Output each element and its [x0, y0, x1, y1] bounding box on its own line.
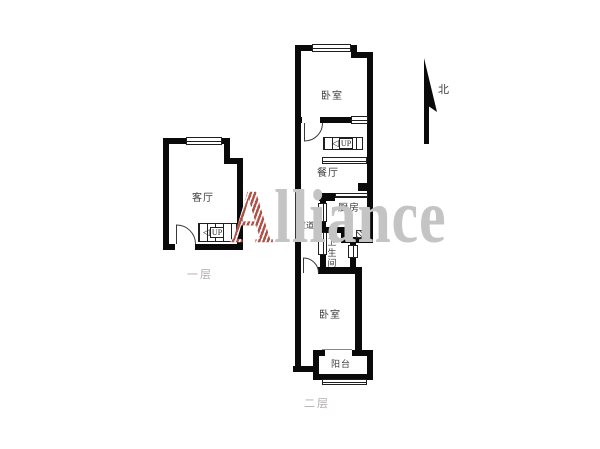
north-arrow-icon [424, 58, 437, 144]
wall-segment [295, 45, 301, 372]
stairs-direction-icon: ◁ [203, 228, 210, 237]
stairs-up-label: ◁UP [332, 138, 353, 149]
watermark: Alliance [230, 179, 446, 255]
wall-segment [355, 267, 362, 353]
wall-segment [320, 193, 326, 203]
floor-plan-canvas: ◁UP 客厅 一层 ◁UP 卧室 餐厅 厨房 过道 卫生间 卧室 阳台 二层 [0, 0, 600, 449]
bathroom-window-symbol [348, 245, 358, 258]
kitchen-counter-line [335, 193, 368, 198]
floor-caption-first: 一层 [183, 266, 217, 282]
door-opening [175, 244, 195, 250]
room-label-dining-room: 餐厅 [313, 168, 343, 179]
north-label: 北 [438, 81, 449, 97]
stairs-direction-icon: ◁ [332, 139, 339, 148]
vent-symbol [356, 230, 366, 238]
door-swing-bedroom-north [305, 123, 323, 141]
room-label-bedroom-south: 卧室 [315, 310, 345, 321]
door-opening [302, 117, 320, 123]
stair-flight-outline [322, 157, 367, 164]
stairs-up-label: ◁UP [203, 227, 224, 238]
floor-caption-second: 二层 [300, 395, 334, 411]
room-label-bedroom-north: 卧室 [317, 91, 347, 102]
wall-segment [358, 183, 373, 191]
room-label-balcony: 阳台 [327, 359, 355, 370]
window-symbol [322, 379, 367, 385]
wall-segment [367, 52, 373, 243]
door-frame-symbol [318, 203, 327, 222]
window-symbol [351, 116, 368, 124]
wall-segment [237, 158, 243, 250]
room-label-bathroom: 卫生间 [326, 237, 338, 269]
wall-segment [163, 138, 169, 250]
door-swing-bedroom-south [304, 258, 319, 273]
room-label-hallway: 过道 [294, 220, 318, 231]
window-symbol [312, 44, 351, 52]
room-label-kitchen: 厨房 [334, 203, 364, 214]
door-swing-living-room [177, 225, 196, 244]
window-symbol [186, 137, 222, 145]
wall-segment [313, 350, 325, 356]
room-label-living-room: 客厅 [188, 193, 218, 204]
